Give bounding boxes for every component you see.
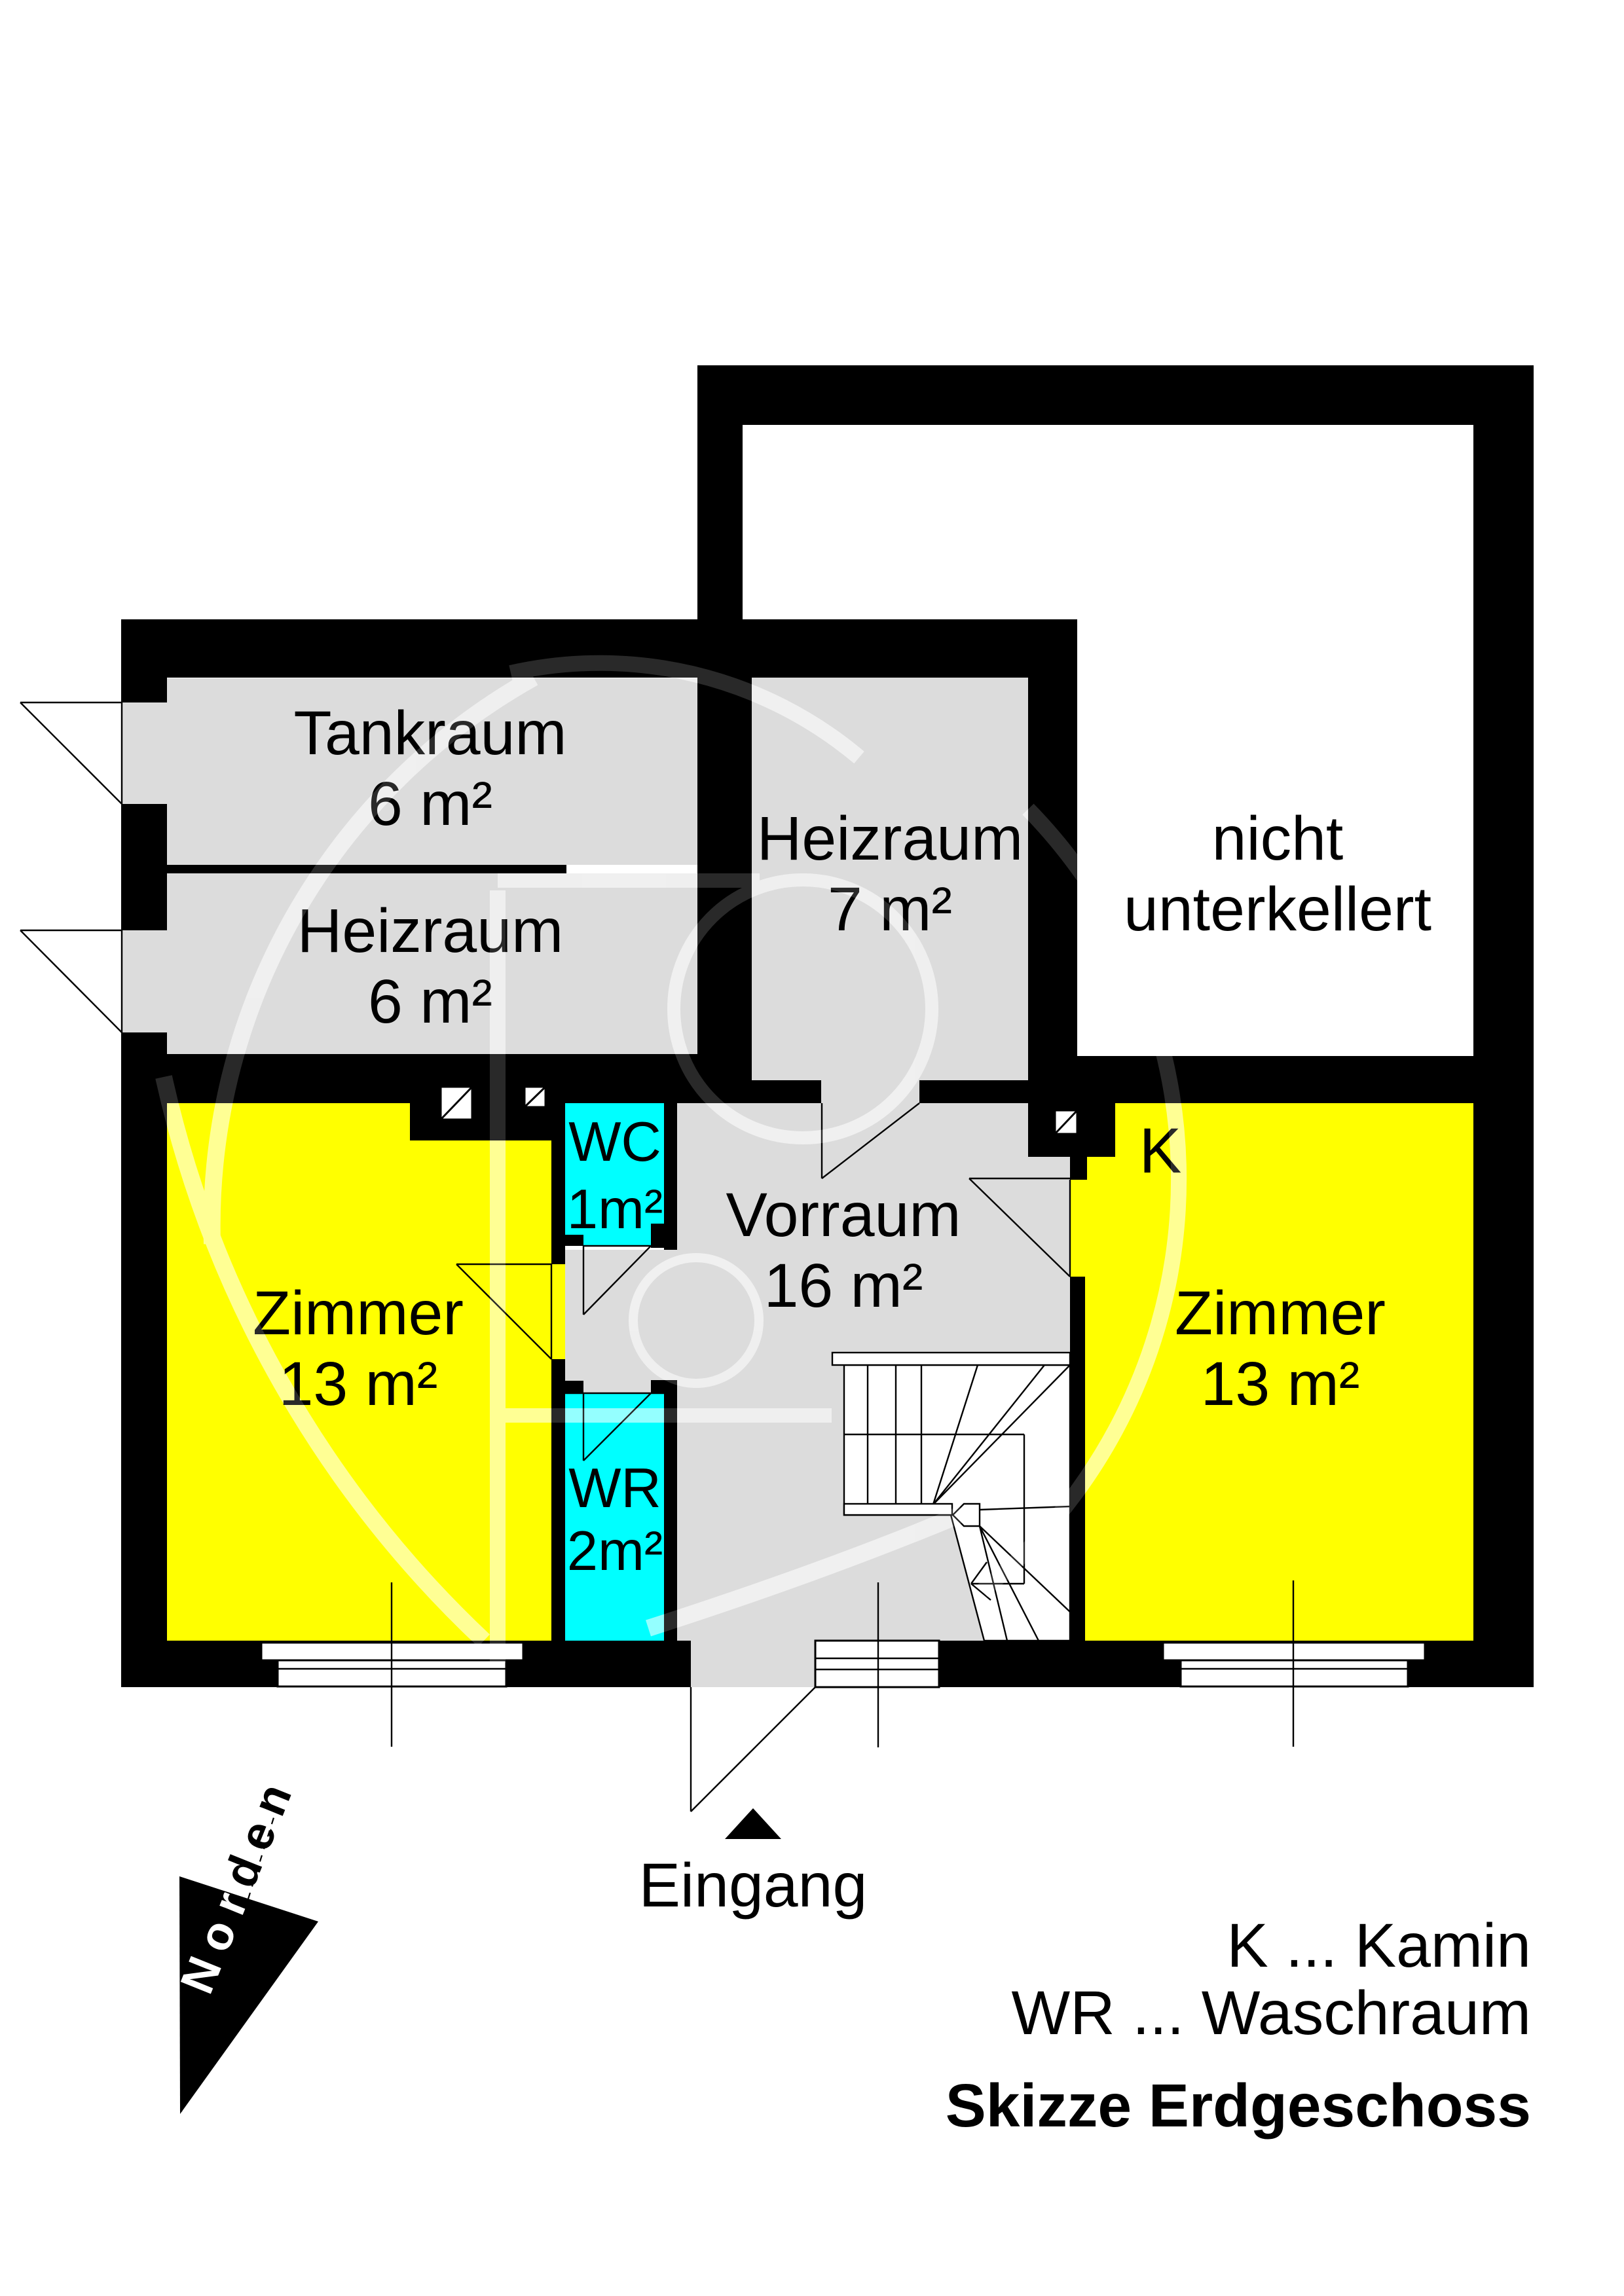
svg-text:Vorraum: Vorraum	[726, 1180, 961, 1250]
svg-text:Heizraum: Heizraum	[297, 896, 564, 966]
svg-text:Zimmer: Zimmer	[253, 1279, 464, 1348]
svg-text:unterkellert: unterkellert	[1124, 875, 1431, 944]
svg-text:K ... Kamin: K ... Kamin	[1227, 1911, 1531, 1980]
svg-text:2m²: 2m²	[567, 1520, 663, 1582]
svg-text:1m²: 1m²	[567, 1178, 663, 1241]
svg-text:nicht: nicht	[1212, 804, 1344, 873]
svg-text:Heizraum: Heizraum	[757, 804, 1024, 873]
svg-text:Eingang: Eingang	[639, 1851, 868, 1920]
svg-text:13 m²: 13 m²	[1201, 1349, 1360, 1419]
svg-text:WR: WR	[568, 1457, 661, 1520]
svg-text:6 m²: 6 m²	[368, 967, 492, 1036]
svg-text:WC: WC	[568, 1111, 661, 1173]
svg-text:WR ... Waschraum: WR ... Waschraum	[1012, 1978, 1532, 2048]
svg-text:Zimmer: Zimmer	[1175, 1279, 1386, 1348]
svg-text:16 m²: 16 m²	[764, 1251, 923, 1321]
svg-text:Skizze Erdgeschoss: Skizze Erdgeschoss	[946, 2071, 1531, 2140]
